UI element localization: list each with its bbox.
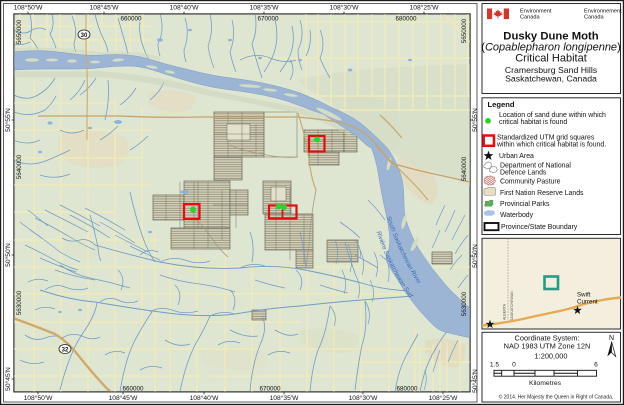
svg-text:5630000: 5630000 — [16, 290, 23, 315]
svg-text:Urban Area: Urban Area — [499, 153, 534, 160]
svg-text:Legend: Legend — [488, 100, 515, 109]
svg-text:Provincial Parks: Provincial Parks — [500, 201, 550, 208]
svg-text:1:200,000: 1:200,000 — [535, 352, 568, 361]
svg-text:Standardized UTM grid squares: Standardized UTM grid squares — [497, 135, 595, 142]
svg-text:670000: 670000 — [257, 16, 279, 23]
svg-text:680000: 680000 — [395, 16, 417, 23]
svg-text:108°50'W: 108°50'W — [24, 394, 54, 402]
svg-text:30: 30 — [81, 33, 88, 39]
svg-text:ALBERTA: ALBERTA — [503, 303, 507, 320]
svg-text:5650000: 5650000 — [461, 18, 468, 43]
svg-text:0: 0 — [512, 362, 516, 369]
svg-text:108°30'W: 108°30'W — [349, 394, 379, 402]
svg-text:5640000: 5640000 — [16, 154, 23, 179]
svg-text:Department of National: Department of National — [500, 162, 571, 169]
svg-text:Province/State Boundary: Province/State Boundary — [501, 224, 578, 231]
svg-text:Defence Lands: Defence Lands — [500, 170, 547, 177]
svg-text:108°35'W: 108°35'W — [250, 4, 280, 12]
svg-text:32: 32 — [62, 348, 69, 354]
svg-text:108°45'W: 108°45'W — [109, 394, 139, 402]
svg-text:Current: Current — [577, 298, 598, 305]
svg-text:First Nation Reserve Lands: First Nation Reserve Lands — [500, 190, 584, 197]
svg-text:6: 6 — [594, 362, 598, 369]
svg-text:critical habitat is found: critical habitat is found — [499, 119, 567, 126]
svg-text:N: N — [609, 335, 614, 342]
svg-text:108°50'W: 108°50'W — [14, 4, 44, 12]
svg-text:50°55'N: 50°55'N — [4, 108, 12, 132]
svg-text:108°45'W: 108°45'W — [90, 4, 120, 12]
svg-text:1.5: 1.5 — [490, 362, 499, 369]
svg-text:5630000: 5630000 — [461, 291, 468, 316]
svg-text:680000: 680000 — [396, 386, 418, 393]
svg-text:670000: 670000 — [259, 386, 281, 393]
svg-text:108°25'W: 108°25'W — [429, 394, 459, 402]
svg-text:Location of sand dune within w: Location of sand dune within which — [499, 112, 606, 119]
svg-text:Saskatchewan, Canada: Saskatchewan, Canada — [505, 74, 597, 84]
svg-text:Kilometres: Kilometres — [529, 380, 562, 387]
svg-text:NAD 1983 UTM Zone 12N: NAD 1983 UTM Zone 12N — [504, 341, 591, 350]
svg-text:108°35'W: 108°35'W — [270, 394, 300, 402]
svg-text:Community Pasture: Community Pasture — [500, 178, 561, 185]
svg-text:660000: 660000 — [122, 386, 144, 393]
svg-text:108°30'W: 108°30'W — [330, 4, 360, 12]
svg-text:50°50'N: 50°50'N — [4, 243, 12, 267]
svg-text:SASKATCHEWAN: SASKATCHEWAN — [510, 291, 514, 321]
svg-text:108°25'W: 108°25'W — [410, 4, 440, 12]
svg-text:50°45'N: 50°45'N — [4, 367, 12, 391]
svg-text:Waterbody: Waterbody — [500, 212, 534, 219]
svg-text:5650000: 5650000 — [16, 19, 23, 44]
svg-text:Canada: Canada — [520, 15, 540, 21]
svg-text:© 2014. Her Majesty the Queen: © 2014. Her Majesty the Queen in Right o… — [499, 393, 614, 400]
svg-text:Canada: Canada — [584, 15, 604, 21]
svg-text:108°40'W: 108°40'W — [190, 394, 220, 402]
svg-text:Critical Habitat: Critical Habitat — [515, 53, 587, 65]
svg-text:108°40'W: 108°40'W — [170, 4, 200, 12]
svg-text:within which critical habitat: within which critical habitat is found. — [496, 142, 606, 149]
svg-text:5640000: 5640000 — [461, 156, 468, 181]
svg-text:660000: 660000 — [120, 16, 142, 23]
